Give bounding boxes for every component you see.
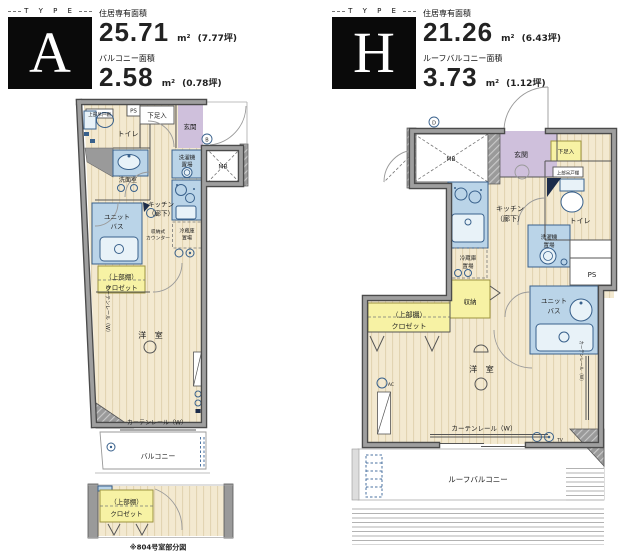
unit-a-typebox: T Y P E A [8,6,92,92]
label-upper-cabinet: 上部吊戸棚 [557,170,580,177]
dash-line [403,11,416,12]
washer-icon [182,168,192,178]
unit-h-typebox: T Y P E H [332,6,416,92]
balcony-tsubo: (0.78坪) [182,79,221,89]
type-caption: T Y P E [8,6,92,16]
label-western-room: 洋 室 [138,330,166,340]
label-shoe-box: 下足入 [558,149,575,156]
label-kitchen-1: キッチン [496,205,524,213]
label-counter-2: カウンター [146,235,170,242]
label-ps: PS [588,271,597,279]
floorplan-page: T Y P E A 住居専有面積 25.71 m² (7.77坪) バルコニー面… [0,0,640,560]
label-curtain-rail-bottom: カーテンレール（W） [452,425,517,433]
toilet-tank [560,179,584,191]
area-value: 21.26 [423,17,493,47]
label-curtain-rail-right: カーテンレール（W） [578,341,584,384]
label-washer-2: 置場 [181,161,193,169]
label-bath-1: ユニット [104,213,130,221]
label-fridge-2: 置場 [182,235,192,242]
dash-line [79,11,92,12]
bathtub [536,324,593,351]
label-fridge-2: 置場 [462,262,474,270]
label-bath-2: バス [111,223,124,231]
label-kitchen-1: キッチン [148,201,174,209]
label-fridge-1: 冷蔵庫 [179,228,194,235]
label-caption-804: ※804号室部分図 [130,543,186,552]
type-caption: T Y P E [332,6,416,16]
label-fridge-1: 冷蔵庫 [460,254,477,262]
label-kitchen-2: （廊下） [148,209,174,218]
label-washer-2: 置場 [543,241,555,249]
toilet-bowl [561,192,583,212]
label-upper-cabinet: 上部吊戸棚 [88,111,111,118]
dash-line [332,11,345,12]
label-ac: AC [388,382,394,388]
label-counter-1: 収納式 [151,228,166,235]
balcony-floor [100,432,206,469]
kitchen-sink [176,206,196,219]
unit-h-header: T Y P E H 住居専有面積 21.26 m² (6.43坪) ルーフバルコ… [332,6,573,92]
area-unit: m² [501,34,514,44]
dash-line [8,11,21,12]
label-ps: PS [130,109,137,115]
label-washroom: 洗面室 [119,176,137,184]
label-kitchen-2: （廊下） [496,214,524,223]
area-value: 25.71 [99,17,169,47]
floorplan-a: 上部吊戸棚 PS 下足入 玄関 B MB トイレ 洗濯機 置場 洗面室 ユニット… [55,95,265,557]
floorplan-h: D MB 玄関 下足入 上部吊戸棚 トイレ キッチン （廊下） 冷蔵庫 置場 洗… [345,85,620,560]
label-inset-closet-1: （上部棚） [110,497,143,506]
type-word: T Y P E [21,7,79,15]
label-toilet: トイレ [570,217,591,225]
area-tsubo: (7.77坪) [198,34,237,44]
label-inset-closet-2: クロゼット [110,509,143,518]
unit-a-letter-box: A [8,17,92,89]
label-toilet: トイレ [118,130,139,138]
roof-deck-stripes [352,505,604,545]
label-storage: 収納 [464,297,477,306]
label-roof-balcony: ルーフバルコニー [448,475,507,484]
label-door-mark-b: B [205,137,209,143]
label-closet-1: （上部棚） [105,272,138,281]
unit-h-areas: 住居専有面積 21.26 m² (6.43坪) ルーフバルコニー面積 3.73 … [423,6,573,92]
roof-deck-stripes-right [566,468,604,502]
balcony-value-row: 2.58 m² (0.78坪) [99,64,249,91]
label-curtain-rail-left: カーテンレール（W） [104,285,110,335]
balcony-unit: m² [162,79,175,89]
label-tv: TV [556,438,563,444]
label-bath-2: バス [548,307,561,315]
label-mb: MB [446,156,455,163]
area-value-row: 25.71 m² (7.77坪) [99,19,249,46]
label-curtain-rail-bottom: カーテンレール（W） [127,420,187,427]
label-washer-1: 洗濯機 [179,154,196,162]
label-bath-1: ユニット [541,297,567,305]
unit-h-letter-box: H [332,17,416,89]
label-balcony: バルコニー [141,453,176,461]
balcony-value: 2.58 [99,62,154,92]
label-closet-2: クロゼット [392,322,427,331]
label-door-mark-d: D [432,120,436,126]
label-closet-1: （上部棚） [392,310,427,319]
label-washer-1: 洗濯機 [541,233,558,241]
bathtub [100,237,138,261]
unit-h-letter: H [353,24,395,82]
area-tsubo: (6.43坪) [522,34,561,44]
unit-a-header: T Y P E A 住居専有面積 25.71 m² (7.77坪) バルコニー面… [8,6,249,92]
area-unit: m² [177,34,190,44]
area-value-row: 21.26 m² (6.43坪) [423,19,573,46]
kitchen-sink [452,214,484,242]
label-entrance: 玄関 [184,122,197,131]
type-word: T Y P E [345,7,403,15]
label-western-room: 洋 室 [469,364,497,374]
unit-a-areas: 住居専有面積 25.71 m² (7.77坪) バルコニー面積 2.58 m² … [99,6,249,92]
washer-icon [540,248,556,264]
label-mb: MB [218,164,227,171]
label-entrance: 玄関 [514,150,528,159]
label-shoe-box: 下足入 [147,112,167,120]
unit-a-letter: A [29,24,71,82]
